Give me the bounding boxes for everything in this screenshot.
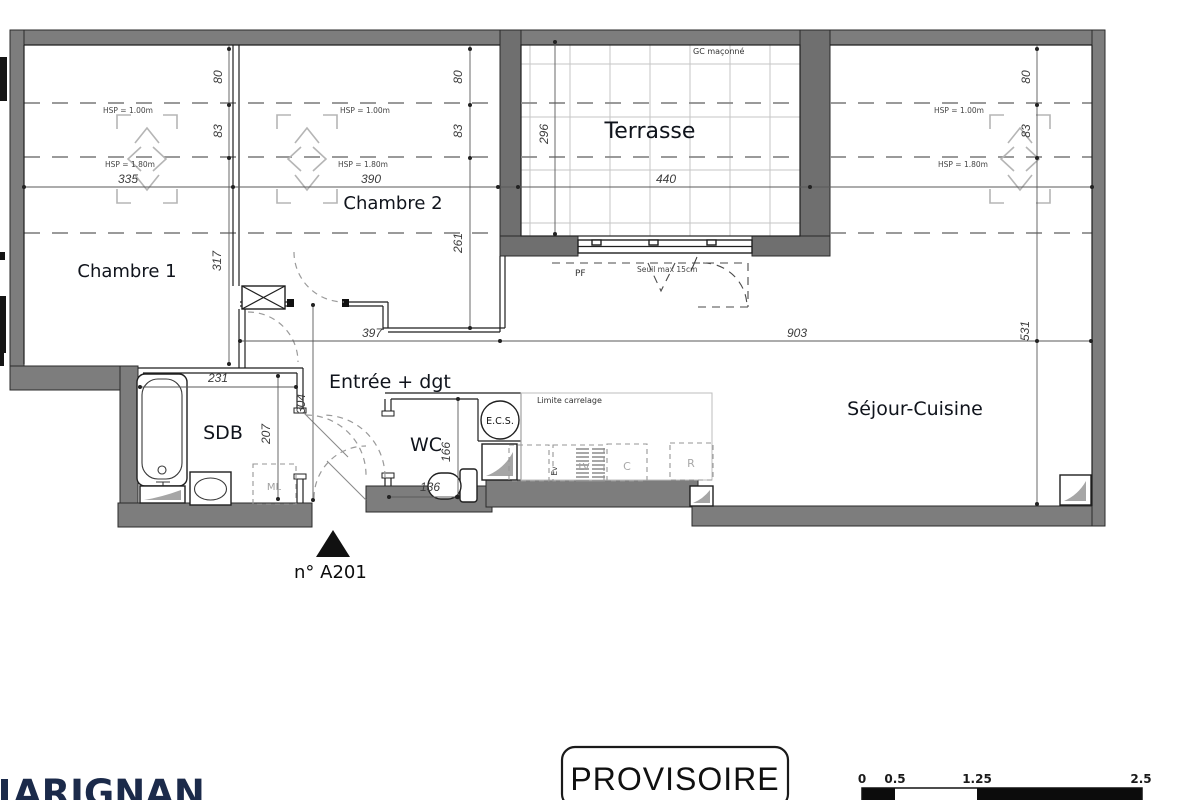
left-edge-fragments (0, 57, 7, 366)
limite-carrelage-label: Limite carrelage (537, 396, 602, 405)
dim-390: 390 (361, 172, 381, 186)
dim-80: 80 (451, 70, 465, 84)
kitchen-drain-icon (690, 486, 713, 506)
provisoire-stamp: PROVISOIRE (562, 747, 788, 800)
wc-drain-icon (482, 444, 517, 480)
entrance-block: n° A201 (294, 530, 367, 583)
skylight-icon (277, 115, 337, 203)
scale-tick-25: 2.5 (1130, 772, 1151, 786)
living-room-drain-icon (1060, 475, 1091, 505)
floor-plan-drawing: 335 390 440 296 80 83 317 80 83 261 80 8… (0, 0, 1188, 800)
room-label-wc: WC (410, 434, 442, 456)
scale-tick-05: 0.5 (884, 772, 905, 786)
dimension-labels: 335 390 440 296 80 83 317 80 83 261 80 8… (118, 70, 1033, 494)
dim-261: 261 (451, 233, 465, 254)
room-label-sdb: SDB (203, 422, 243, 444)
dim-397: 397 (362, 326, 383, 340)
dim-317: 317 (210, 250, 224, 271)
ml-label: ML (267, 482, 282, 493)
cook-label: C (623, 460, 631, 473)
room-label-chambre1: Chambre 1 (77, 261, 176, 282)
dim-231: 231 (207, 371, 228, 385)
room-label-entree: Entrée + dgt (329, 371, 451, 393)
scale-tick-0: 0 (858, 772, 866, 786)
dim-296: 296 (537, 124, 551, 145)
pf-label: PF (575, 269, 586, 279)
floor-plan-page: 335 390 440 296 80 83 317 80 83 261 80 8… (0, 0, 1188, 800)
hsp-100-label: HSP = 1.00m (103, 106, 153, 115)
dim-83: 83 (1019, 124, 1033, 138)
room-label-chambre2: Chambre 2 (343, 193, 442, 214)
skylight-icon (117, 115, 177, 203)
fridge-label: R (687, 457, 695, 470)
dim-335: 335 (118, 172, 138, 186)
entrance-arrow-icon (316, 530, 350, 557)
dim-207: 207 (259, 423, 273, 445)
hsp-180-label: HSP = 1.80m (938, 160, 988, 169)
ecs-label: E.C.S. (486, 416, 514, 427)
room-label-terrasse: Terrasse (604, 119, 696, 144)
bathtub-icon (137, 374, 187, 494)
dim-83: 83 (451, 124, 465, 138)
stamp-label: PROVISOIRE (570, 761, 779, 797)
dim-83: 83 (211, 124, 225, 138)
seuil-label: Seuil max 15cm (637, 265, 697, 274)
gc-maconne-label: GC maçonné (693, 46, 744, 56)
dim-136: 136 (420, 480, 440, 494)
hsp-180-label: HSP = 1.80m (105, 160, 155, 169)
dim-304: 304 (294, 394, 308, 414)
hsp-100-label: HSP = 1.00m (934, 106, 984, 115)
scale-tick-125: 1.25 (962, 772, 992, 786)
lv-label: LV (578, 462, 589, 473)
ev-label: Ev (550, 466, 559, 476)
brand-label: ARIGNAN (13, 772, 205, 800)
hsp-180-label: HSP = 1.80m (338, 160, 388, 169)
ceiling-height-dashed-lines (24, 103, 1092, 233)
dim-531: 531 (1018, 321, 1032, 341)
technical-shaft-icon (242, 286, 285, 309)
brand-partial-letter (1, 779, 8, 800)
brand-logo: ARIGNAN (1, 772, 205, 800)
unit-number-label: n° A201 (294, 562, 367, 583)
dim-440: 440 (656, 172, 676, 186)
washbasin-icon (190, 472, 231, 505)
bathtub-drain-icon (140, 486, 185, 503)
dim-903: 903 (787, 326, 807, 340)
room-label-sejour: Séjour-Cuisine (847, 398, 983, 420)
dim-80: 80 (1019, 70, 1033, 84)
hsp-100-label: HSP = 1.00m (340, 106, 390, 115)
dim-80: 80 (211, 70, 225, 84)
scale-bar: 0 0.5 1.25 2.5 (858, 772, 1152, 800)
